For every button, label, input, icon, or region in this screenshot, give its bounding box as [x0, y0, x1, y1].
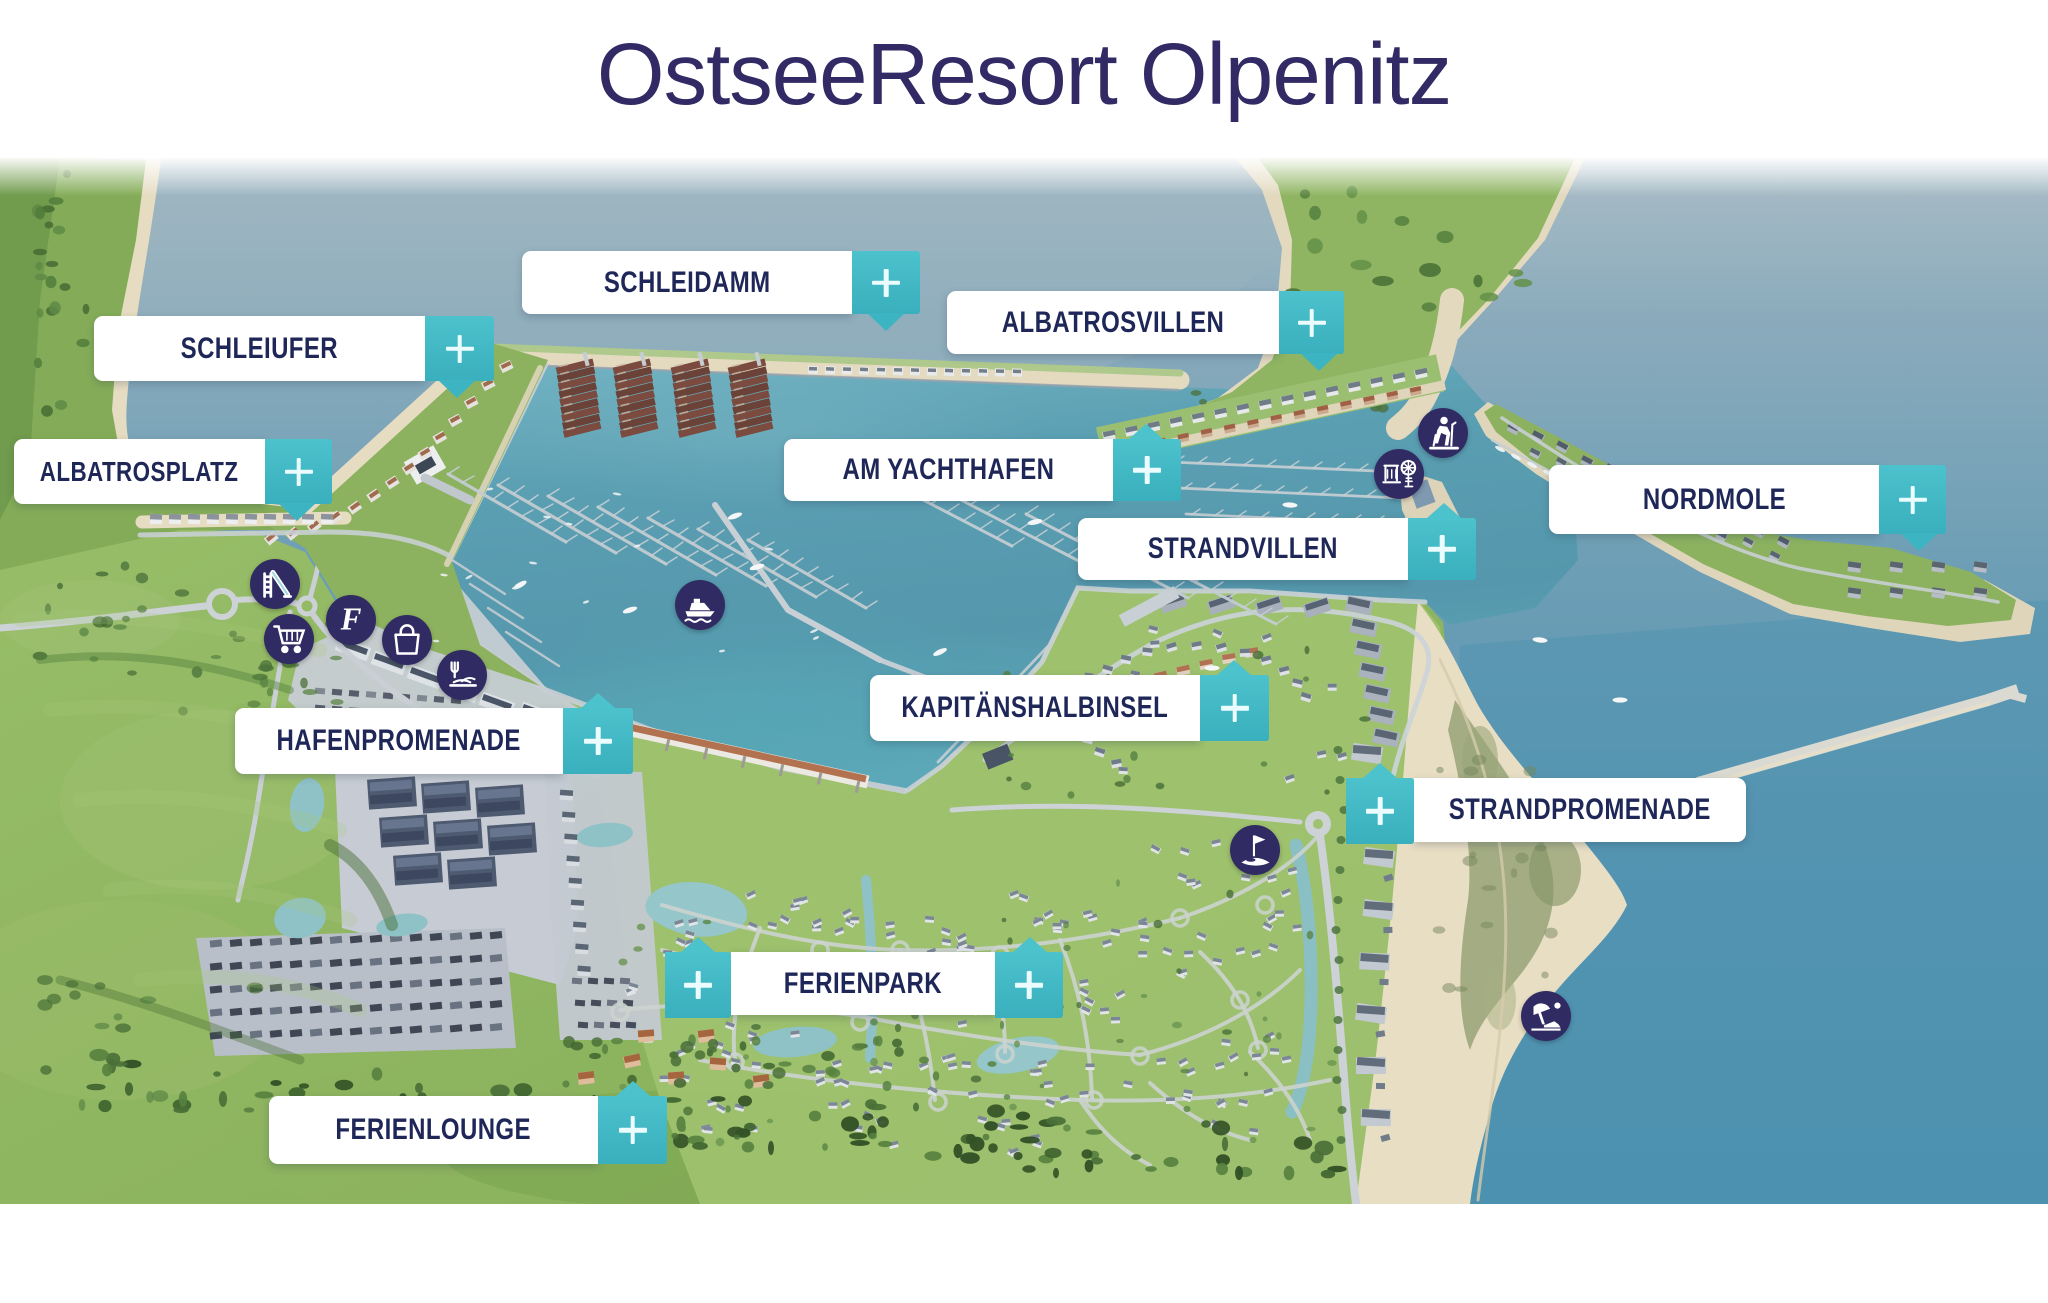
svg-text:F: F — [340, 601, 362, 636]
